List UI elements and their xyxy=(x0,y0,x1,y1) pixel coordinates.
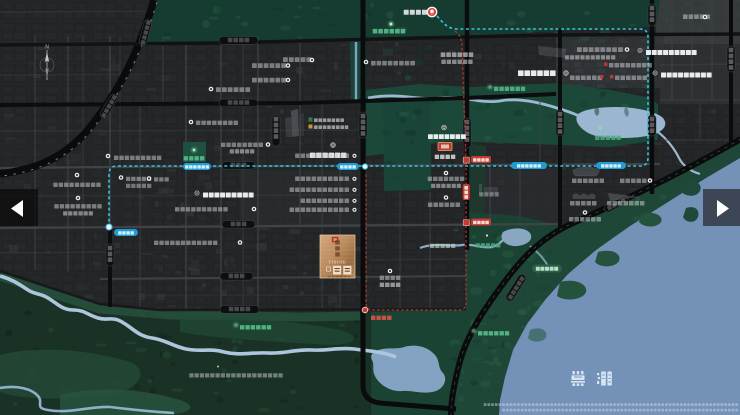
svg-text:N: N xyxy=(45,45,49,51)
svg-text:TISIOE: TISIOE xyxy=(328,260,346,265)
